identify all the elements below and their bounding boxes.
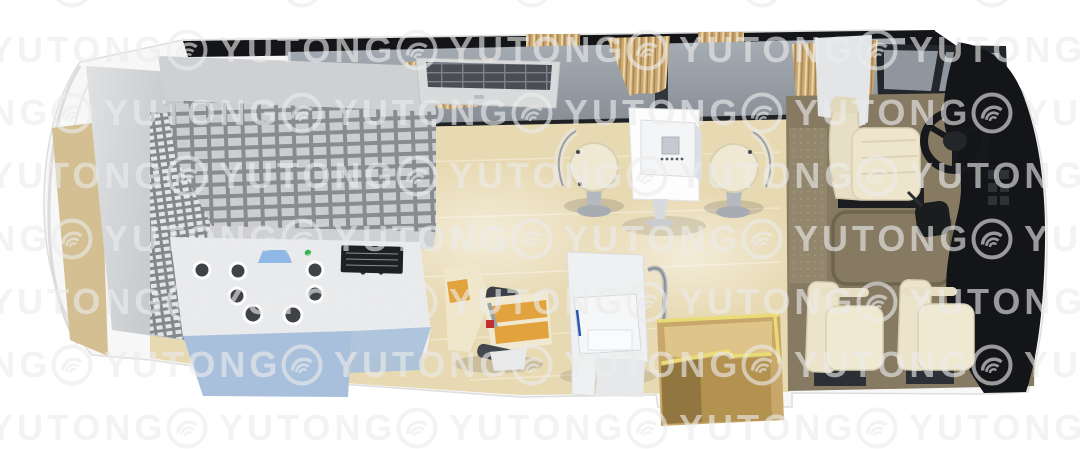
entry-steps	[657, 314, 784, 426]
tabletop-device	[641, 120, 702, 182]
bus-interior-scene	[0, 0, 1080, 449]
bus-floorplan-render: YUTONGYUTONGYUTONGYUTONGYUTONGYUTONGYUTO…	[0, 0, 1080, 449]
armrest	[901, 287, 957, 296]
counter-control-panel	[341, 245, 404, 274]
armrest	[821, 288, 869, 297]
belt-buckle	[486, 320, 494, 328]
status-led	[305, 250, 311, 256]
overhead-ac-unit	[416, 58, 560, 108]
counter-sink	[258, 250, 292, 263]
desk-device	[574, 294, 641, 354]
counter-front-panel	[183, 331, 352, 397]
